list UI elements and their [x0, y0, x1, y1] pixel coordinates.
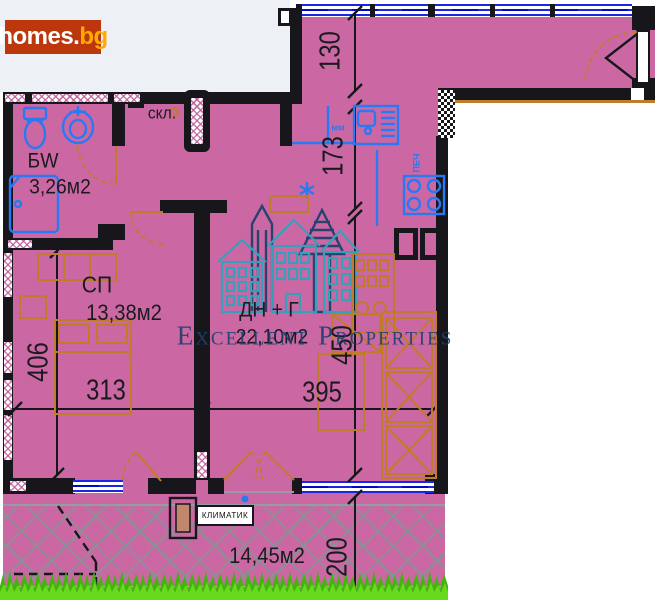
bathroom-area: 3,26м2 — [29, 177, 91, 198]
terrace-area: 14,45м2 — [229, 545, 305, 567]
bathroom-label: БW — [28, 151, 59, 172]
watermark-text: Excellent Properties — [177, 321, 454, 352]
dim-406: 406 — [25, 342, 54, 382]
grass — [0, 571, 448, 600]
kitchen-sink-icon — [354, 106, 398, 144]
mm-annotation: мм — [331, 124, 344, 133]
entrance-door — [585, 32, 637, 84]
dim-173: 173 — [320, 136, 349, 176]
dim-313: 313 — [86, 377, 126, 406]
logo-text-accent: bg — [79, 23, 107, 51]
toilet-icon — [24, 108, 46, 148]
dim-200: 200 — [324, 537, 353, 577]
dim-395: 395 — [302, 379, 342, 408]
drain-dot — [242, 496, 249, 503]
floorplan-canvas: homes.bg скл. БW 3,26м2 СП 13,38м2 ДН + … — [0, 0, 655, 600]
ac-unit — [170, 498, 196, 538]
stove-icon — [404, 176, 444, 214]
living-label: ДН + Г — [239, 300, 299, 321]
bedroom-label: СП — [82, 274, 113, 297]
bedroom-terrace-door — [123, 452, 161, 481]
bedroom-area: 13,38м2 — [86, 302, 162, 324]
logo-text-main: homes. — [0, 23, 79, 51]
homes-bg-logo[interactable]: homes.bg — [5, 20, 101, 54]
ac-label: КЛИМАТИК — [202, 511, 248, 520]
dining-table — [270, 196, 308, 212]
dim-130: 130 — [317, 31, 346, 71]
storage-label: скл. — [148, 105, 176, 122]
nightstand — [20, 296, 46, 318]
bedroom-door — [131, 212, 163, 244]
living-terrace-door — [224, 452, 294, 480]
ac-label-box: КЛИМАТИК — [196, 505, 254, 526]
stove-annotation: ПЕЧ — [413, 154, 422, 173]
terrace-boundary — [14, 506, 96, 592]
sink-icon — [63, 106, 93, 143]
